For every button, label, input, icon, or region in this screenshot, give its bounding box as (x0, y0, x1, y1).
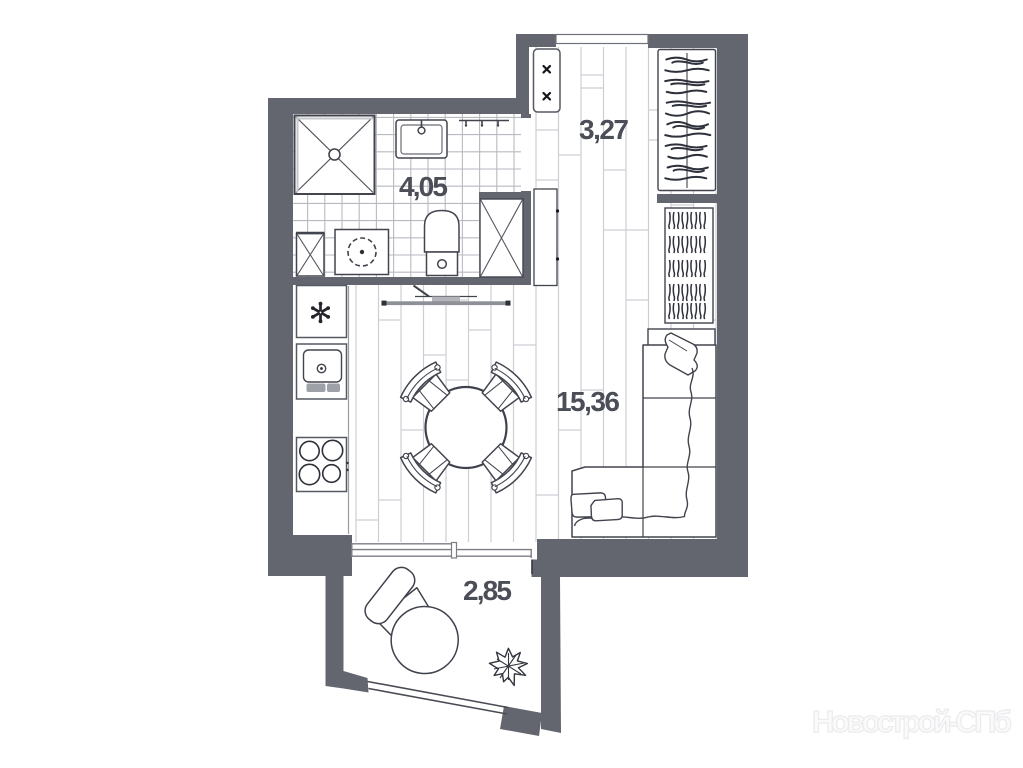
svg-text:3,27: 3,27 (579, 114, 629, 145)
svg-text:Новострой-СПб: Новострой-СПб (812, 704, 1012, 739)
svg-text:15,36: 15,36 (556, 386, 620, 417)
svg-text:4,05: 4,05 (399, 171, 448, 202)
svg-text:2,85: 2,85 (463, 575, 512, 606)
